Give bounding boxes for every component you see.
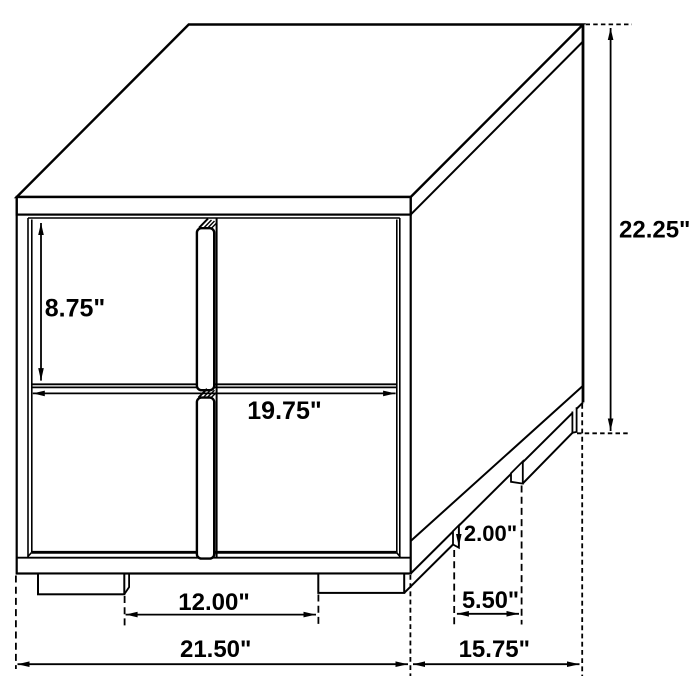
svg-text:22.25": 22.25" xyxy=(619,216,690,243)
svg-text:19.75": 19.75" xyxy=(247,397,321,425)
svg-text:12.00": 12.00" xyxy=(178,589,249,616)
svg-text:15.75": 15.75" xyxy=(459,636,530,663)
svg-text:5.50": 5.50" xyxy=(462,588,519,614)
svg-text:2.00": 2.00" xyxy=(464,521,517,546)
svg-text:8.75": 8.75" xyxy=(45,295,106,323)
svg-text:21.50": 21.50" xyxy=(180,636,251,663)
